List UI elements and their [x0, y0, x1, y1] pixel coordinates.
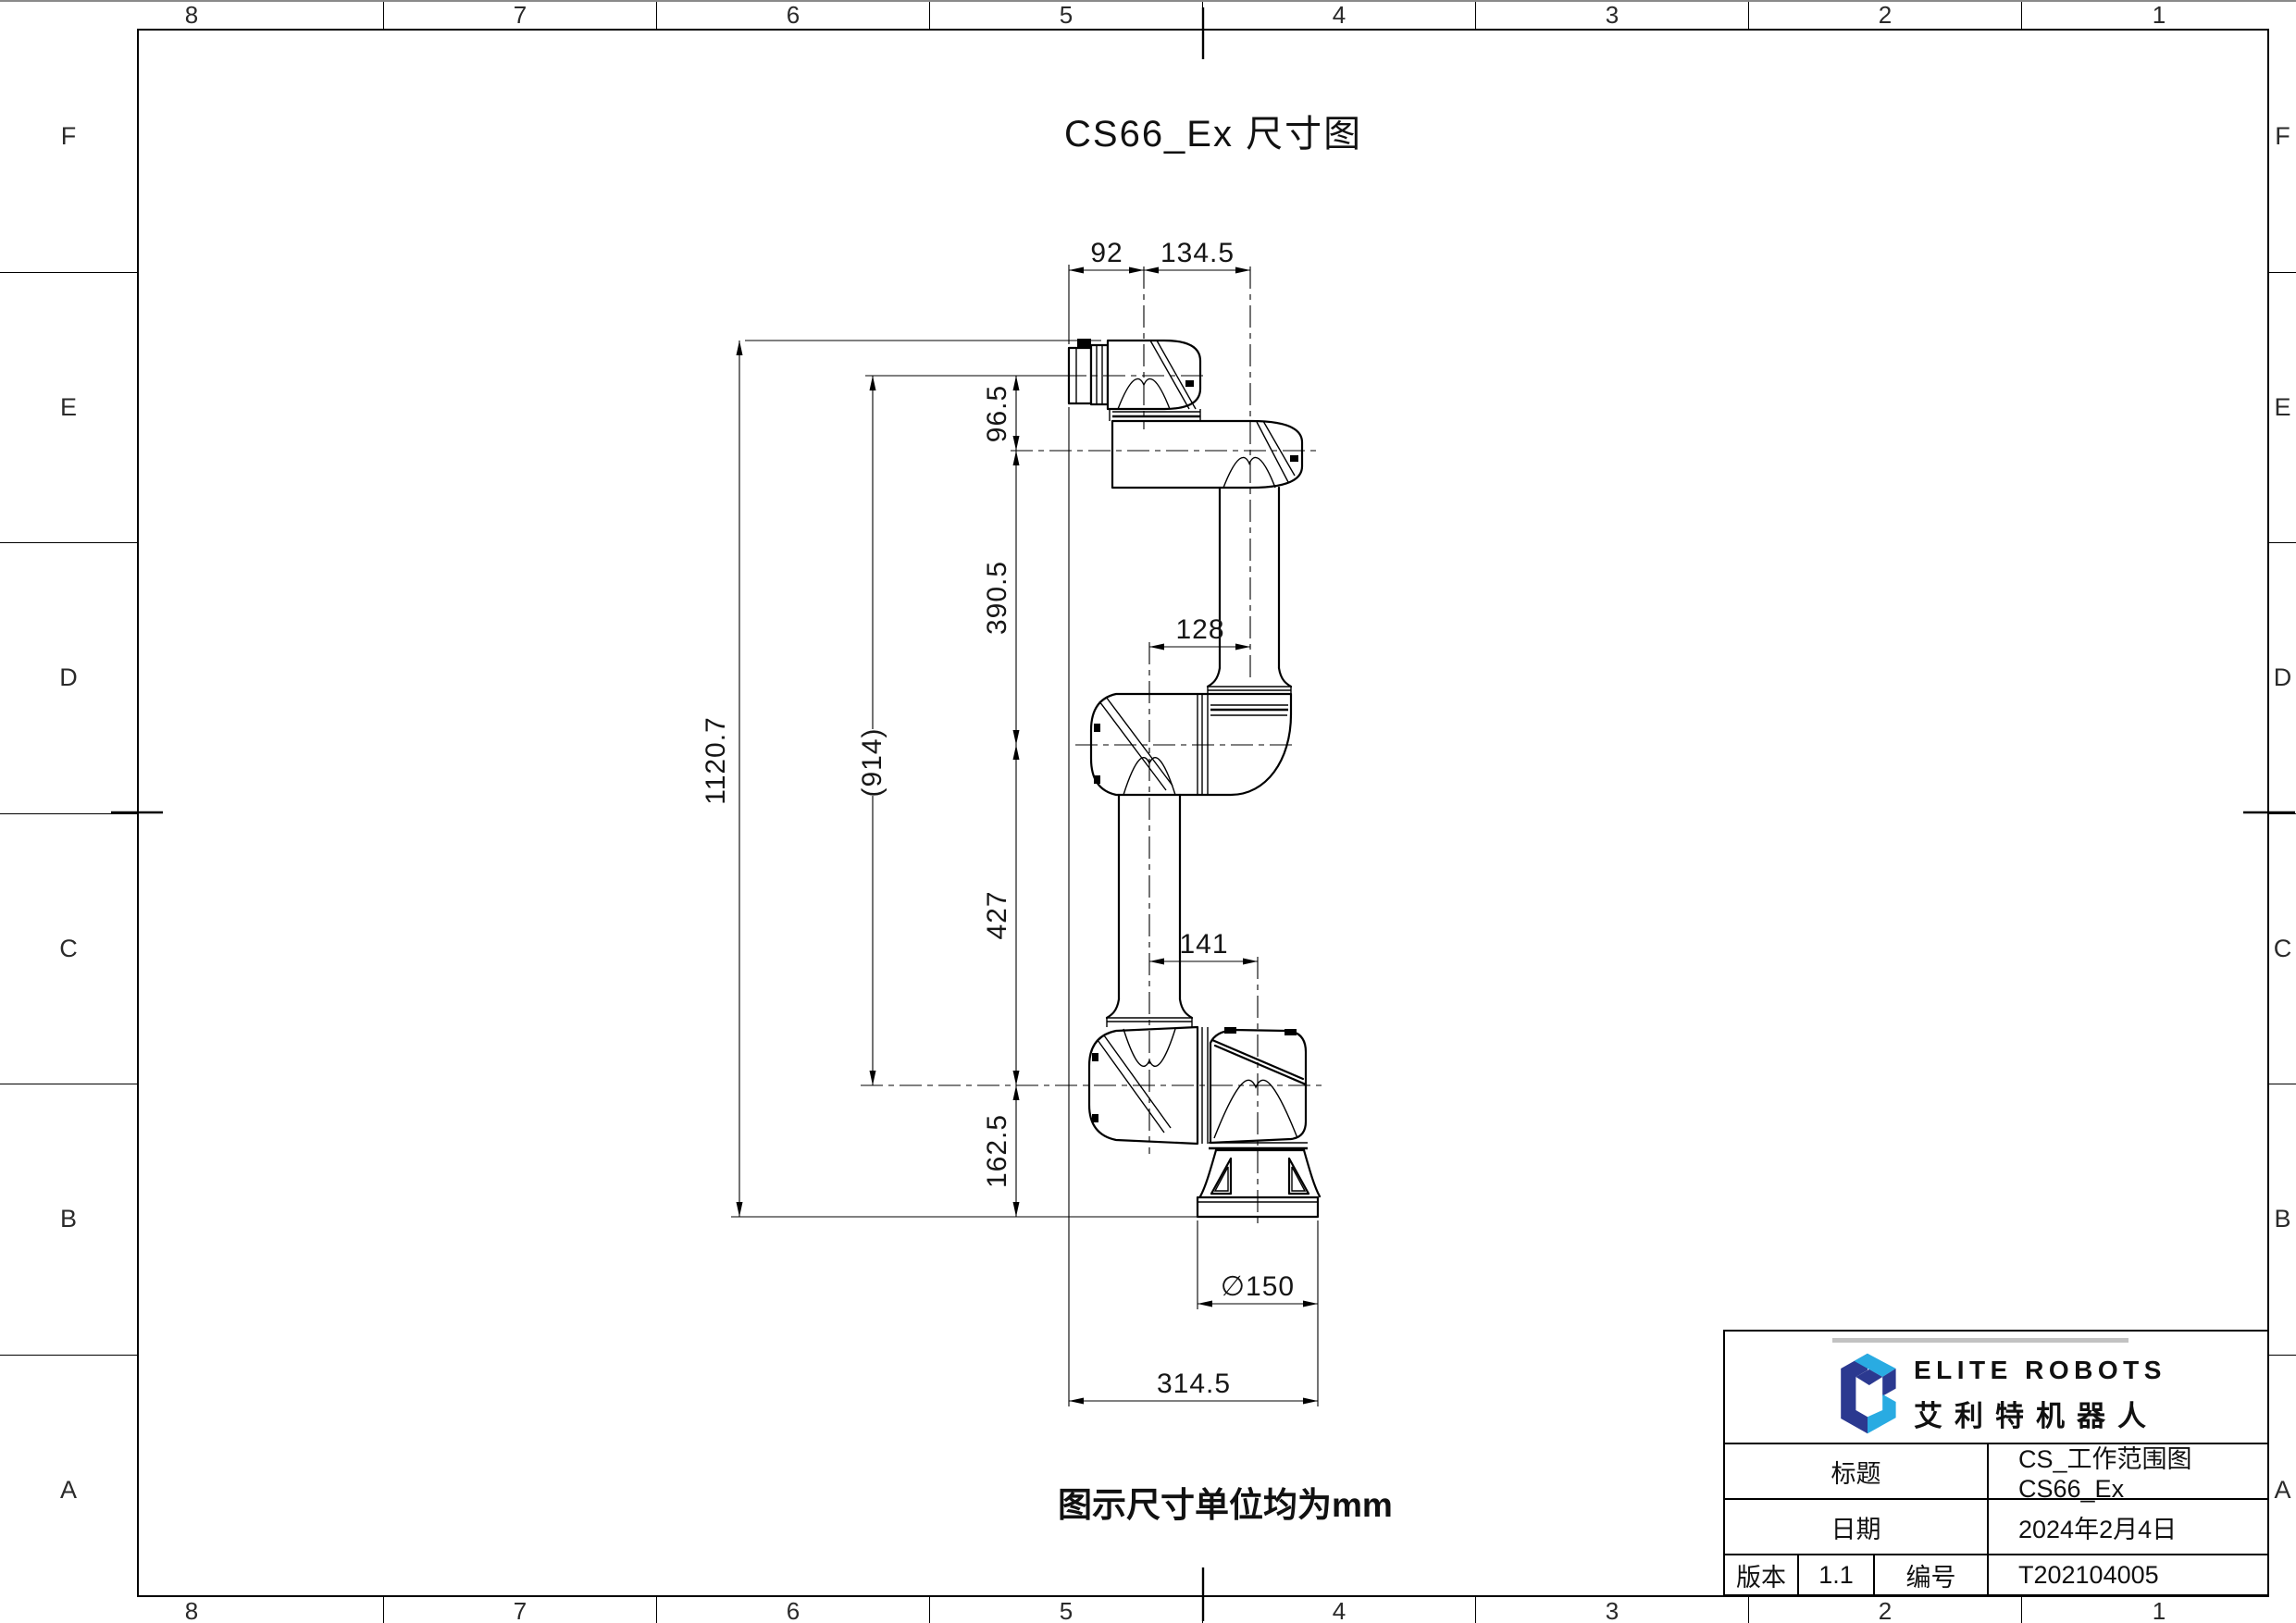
title-block: ELITE ROBOTS 艾利特机器人 标题 CS_工作范围图 CS66_Ex …	[1723, 1330, 2269, 1596]
logo-divider	[1832, 1338, 2128, 1343]
dim-150-label: ∅150	[1221, 1271, 1295, 1302]
title-block-date-row: 日期 2024年2月4日	[1725, 1498, 2267, 1554]
date-value: 2024年2月4日	[1987, 1500, 2267, 1554]
units-note: 图示尺寸单位均为mm	[1058, 1477, 1393, 1527]
number-label: 编号	[1873, 1555, 1987, 1594]
dimension-lines: 92 134.5 128 141 ∅150 314.5 1120.7 (914)…	[701, 238, 1318, 1406]
dim-314-5-label: 314.5	[1157, 1369, 1231, 1399]
title-block-logo-row: ELITE ROBOTS 艾利特机器人	[1725, 1332, 2267, 1443]
number-value: T202104005	[1987, 1555, 2267, 1594]
brand-name-en: ELITE ROBOTS	[1914, 1356, 2166, 1385]
title-block-version-row: 版本 1.1 编号 T202104005	[1725, 1554, 2267, 1594]
version-label: 版本	[1725, 1555, 1797, 1594]
dim-427-label: 427	[982, 890, 1012, 939]
dim-390-5-label: 390.5	[982, 561, 1012, 635]
brand-name-cn: 艾利特机器人	[1914, 1393, 2158, 1434]
dim-134-5-label: 134.5	[1160, 238, 1235, 268]
title-value: CS_工作范围图 CS66_Ex	[1987, 1444, 2267, 1498]
dim-914-label: (914)	[857, 727, 887, 797]
date-label: 日期	[1725, 1500, 1987, 1554]
dim-1120-7-label: 1120.7	[701, 716, 731, 805]
elite-robots-logo-icon	[1834, 1350, 1901, 1437]
dim-96-5-label: 96.5	[982, 385, 1012, 442]
dim-162-5-label: 162.5	[982, 1114, 1012, 1188]
version-value: 1.1	[1797, 1555, 1873, 1594]
dim-141-label: 141	[1179, 929, 1228, 960]
title-label: 标题	[1725, 1444, 1987, 1498]
dim-128-label: 128	[1175, 614, 1224, 645]
page-title: CS66_Ex 尺寸图	[1064, 104, 1362, 157]
title-block-title-row: 标题 CS_工作范围图 CS66_Ex	[1725, 1443, 2267, 1498]
dim-92-label: 92	[1090, 238, 1123, 268]
drawing-sheet: 8 7 6 5 4 3 2 1 8 7 6 5 4 3 2 1 F E D C …	[0, 0, 2296, 1623]
